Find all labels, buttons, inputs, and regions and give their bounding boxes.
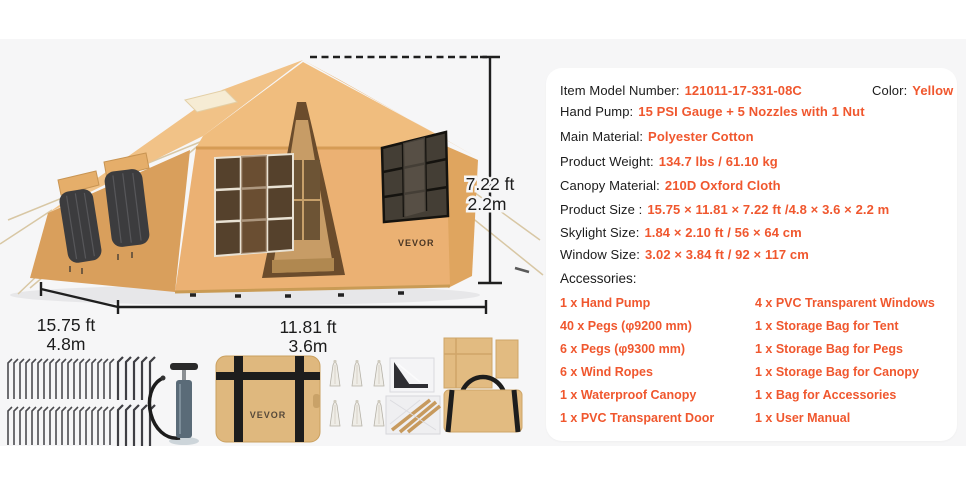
accessories-illustration: VEVOR [8, 338, 522, 446]
accessory-item: 1 x Waterproof Canopy [560, 388, 696, 402]
spec-label: Main Material: [560, 129, 643, 144]
tent-right-wall [446, 146, 478, 288]
accessory-item: 1 x Storage Bag for Pegs [755, 342, 903, 356]
color-label: Color: [872, 83, 907, 98]
spec-row-main-material: Main Material:Polyester Cotton [560, 129, 953, 144]
spec-label: Product Weight: [560, 154, 654, 169]
tent-storage-bag: VEVOR [216, 356, 320, 442]
spec-label: Window Size: [560, 247, 640, 262]
model-value: 121011-17-331-08C [685, 83, 802, 98]
product-infographic-page: { "page": { "background": "#ffffff", "st… [0, 0, 966, 489]
height-label-ft: 7.22 ft [466, 174, 515, 194]
spec-label: Product Size : [560, 202, 642, 217]
spec-row-weight: Product Weight:134.7 lbs / 61.10 kg [560, 154, 953, 169]
spec-label: Skylight Size: [560, 225, 639, 240]
spec-row-model: Item Model Number:121011-17-331-08C Colo… [560, 83, 953, 98]
accessory-item: 1 x Storage Bag for Tent [755, 319, 899, 333]
spec-value: 134.7 lbs / 61.10 kg [659, 154, 778, 169]
spec-row-hand-pump: Hand Pump:15 PSI Gauge + 5 Nozzles with … [560, 104, 953, 119]
spec-row-canopy-material: Canopy Material:210D Oxford Cloth [560, 178, 953, 193]
folded-canopy [444, 338, 518, 388]
color-pair: Color:Yellow [872, 83, 953, 98]
pegs-row-2 [8, 405, 155, 446]
accessories-heading: Accessories: [560, 271, 637, 286]
depth-label-ft: 15.75 ft [37, 315, 96, 335]
color-value: Yellow [912, 83, 953, 98]
spec-value: 1.84 × 2.10 ft / 56 × 64 cm [644, 225, 801, 240]
height-label-m: 2.2m [468, 194, 507, 214]
accessory-item: 6 x Pegs (φ9300 mm) [560, 342, 685, 356]
model-label: Item Model Number: [560, 83, 680, 98]
width-label-ft: 11.81 ft [279, 317, 336, 337]
accessory-item: 1 x PVC Transparent Door [560, 411, 714, 425]
spec-row-product-size: Product Size :15.75 × 11.81 × 7.22 ft /4… [560, 202, 953, 217]
accessory-item: 6 x Wind Ropes [560, 365, 653, 379]
height-dimension-line [478, 57, 502, 283]
spec-label: Canopy Material: [560, 178, 660, 193]
spec-label: Hand Pump: [560, 104, 633, 119]
spec-value: 210D Oxford Cloth [665, 178, 781, 193]
spec-row-skylight-size: Skylight Size:1.84 × 2.10 ft / 56 × 64 c… [560, 225, 953, 240]
spec-value: Polyester Cotton [648, 129, 754, 144]
hand-pump [149, 363, 199, 445]
front-left-window [215, 154, 293, 256]
accessories-pack [386, 396, 440, 434]
tent-illustration: VEVOR [30, 60, 478, 296]
width-label-m: 3.6m [289, 336, 328, 356]
accessory-item: 4 x PVC Transparent Windows [755, 296, 935, 310]
pvc-door-pack [390, 358, 434, 392]
bag-logo: VEVOR [250, 410, 287, 420]
front-right-window [382, 132, 448, 222]
pegs-row-1 [8, 357, 155, 400]
accessory-item: 1 x Bag for Accessories [755, 388, 896, 402]
spec-value: 15 PSI Gauge + 5 Nozzles with 1 Nut [638, 104, 864, 119]
accessory-item: 1 x User Manual [755, 411, 850, 425]
spec-value: 15.75 × 11.81 × 7.22 ft /4.8 × 3.6 × 2.2… [647, 202, 889, 217]
accessory-item: 40 x Pegs (φ9200 mm) [560, 319, 692, 333]
accessory-item: 1 x Hand Pump [560, 296, 650, 310]
spec-value: 3.02 × 3.84 ft / 92 × 117 cm [645, 247, 809, 262]
spec-panel: Item Model Number:121011-17-331-08C Colo… [546, 68, 957, 441]
depth-label-m: 4.8m [47, 334, 86, 354]
tent-logo: VEVOR [398, 238, 435, 248]
product-illustration: VEVOR 7.22 ft 2.2m 15.75 ft 4.8m 11.81 f… [0, 38, 546, 448]
accessory-item: 1 x Storage Bag for Canopy [755, 365, 919, 379]
spec-row-window-size: Window Size:3.02 × 3.84 ft / 92 × 117 cm [560, 247, 953, 262]
wind-ropes [330, 360, 384, 426]
